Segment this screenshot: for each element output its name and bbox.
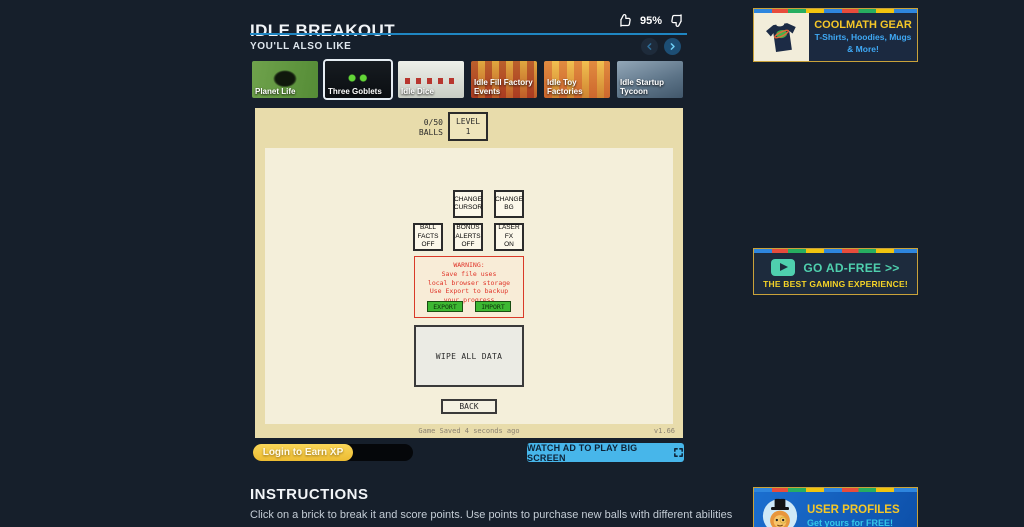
save-warning-box: WARNING: Save file uses local browser st… [414, 256, 524, 318]
ad-free-subtitle: THE BEST GAMING EXPERIENCE! [763, 279, 908, 289]
thumbnail-planet-life[interactable]: Planet Life [252, 61, 318, 98]
save-status: Game Saved 4 seconds ago [255, 427, 683, 435]
instructions-heading: INSTRUCTIONS [250, 486, 369, 503]
thumbs-down-icon[interactable] [669, 12, 686, 29]
balls-counter: 0/50 BALLS [393, 118, 443, 139]
coolmath-gear-ad[interactable]: COOLMATH GEAR T-Shirts, Hoodies, Mugs & … [753, 8, 918, 62]
game-version: v1.66 [654, 427, 675, 435]
gear-ad-title: COOLMATH GEAR [814, 19, 912, 31]
rating-group: 95% [616, 12, 686, 29]
expand-icon [673, 447, 684, 458]
thumbnail-three-goblets[interactable]: Three Goblets [325, 61, 391, 98]
play-icon [771, 259, 795, 276]
page-title: IDLE BREAKOUT [250, 21, 395, 41]
xp-progress-bar[interactable]: Login to Earn XP [253, 444, 413, 461]
go-ad-free-ad[interactable]: GO AD-FREE >> THE BEST GAMING EXPERIENCE… [753, 248, 918, 295]
thumbnail-idle-startup-tycoon[interactable]: Idle Startup Tycoon [617, 61, 683, 98]
lion-avatar [762, 498, 798, 527]
change-bg-button[interactable]: CHANGE BG [494, 190, 524, 218]
thumbnail-label: Idle Fill Factory Events [474, 78, 535, 96]
level-label: LEVEL [456, 117, 480, 127]
import-button[interactable]: IMPORT [475, 301, 511, 312]
ad-free-title: GO AD-FREE >> [803, 261, 899, 275]
profiles-ad-subtitle: Get yours for FREE! [807, 518, 900, 527]
page: IDLE BREAKOUT 95% YOU'LL ALSO LIKE Plane… [0, 0, 1024, 527]
instructions-body: Click on a brick to break it and score p… [250, 507, 750, 527]
watch-ad-label: WATCH AD TO PLAY BIG SCREEN [527, 443, 668, 463]
laser-fx-toggle[interactable]: LASER FX ON [494, 223, 524, 251]
game-carousel: Planet Life Three Goblets Idle Dice Idle… [252, 61, 683, 98]
gear-ad-subtitle: T-Shirts, Hoodies, Mugs & More! [813, 32, 913, 54]
wipe-all-data-button[interactable]: WIPE ALL DATA [414, 325, 524, 387]
back-button[interactable]: BACK [441, 399, 497, 414]
title-divider [250, 33, 687, 35]
game-canvas: 0/50 BALLS LEVEL 1 CHANGE CURSOR CHANGE … [255, 108, 683, 438]
level-value: 1 [466, 127, 471, 137]
save-warning-text: WARNING: Save file uses local browser st… [415, 261, 523, 305]
warning-actions: EXPORT IMPORT [415, 301, 523, 312]
thumbnail-label: Three Goblets [328, 87, 389, 96]
thumbnail-label: Idle Toy Factories [547, 78, 608, 96]
thumbnail-label: Planet Life [255, 87, 316, 96]
level-indicator[interactable]: LEVEL 1 [448, 112, 488, 141]
bonus-alerts-toggle[interactable]: BONUS ALERTS OFF [453, 223, 483, 251]
carousel-nav [641, 38, 681, 55]
tshirt-icon [754, 13, 809, 61]
ball-facts-toggle[interactable]: BALL FACTS OFF [413, 223, 443, 251]
like-percent: 95% [640, 15, 662, 27]
thumbs-up-icon[interactable] [616, 12, 633, 29]
profiles-ad-title: USER PROFILES [807, 504, 900, 516]
login-earn-xp-button[interactable]: Login to Earn XP [253, 444, 353, 461]
thumbnail-idle-fill-factory-events[interactable]: Idle Fill Factory Events [471, 61, 537, 98]
chevron-right-icon[interactable] [664, 38, 681, 55]
also-like-heading: YOU'LL ALSO LIKE [250, 41, 351, 52]
thumbnail-idle-dice[interactable]: Idle Dice [398, 61, 464, 98]
watch-ad-big-screen-button[interactable]: WATCH AD TO PLAY BIG SCREEN [527, 443, 684, 462]
chevron-left-icon[interactable] [641, 38, 658, 55]
export-button[interactable]: EXPORT [427, 301, 463, 312]
thumbnail-label: Idle Startup Tycoon [620, 78, 681, 96]
user-profiles-ad[interactable]: USER PROFILES Get yours for FREE! [753, 487, 918, 527]
thumbnail-label: Idle Dice [401, 87, 462, 96]
change-cursor-button[interactable]: CHANGE CURSOR [453, 190, 483, 218]
thumbnail-idle-toy-factories[interactable]: Idle Toy Factories [544, 61, 610, 98]
